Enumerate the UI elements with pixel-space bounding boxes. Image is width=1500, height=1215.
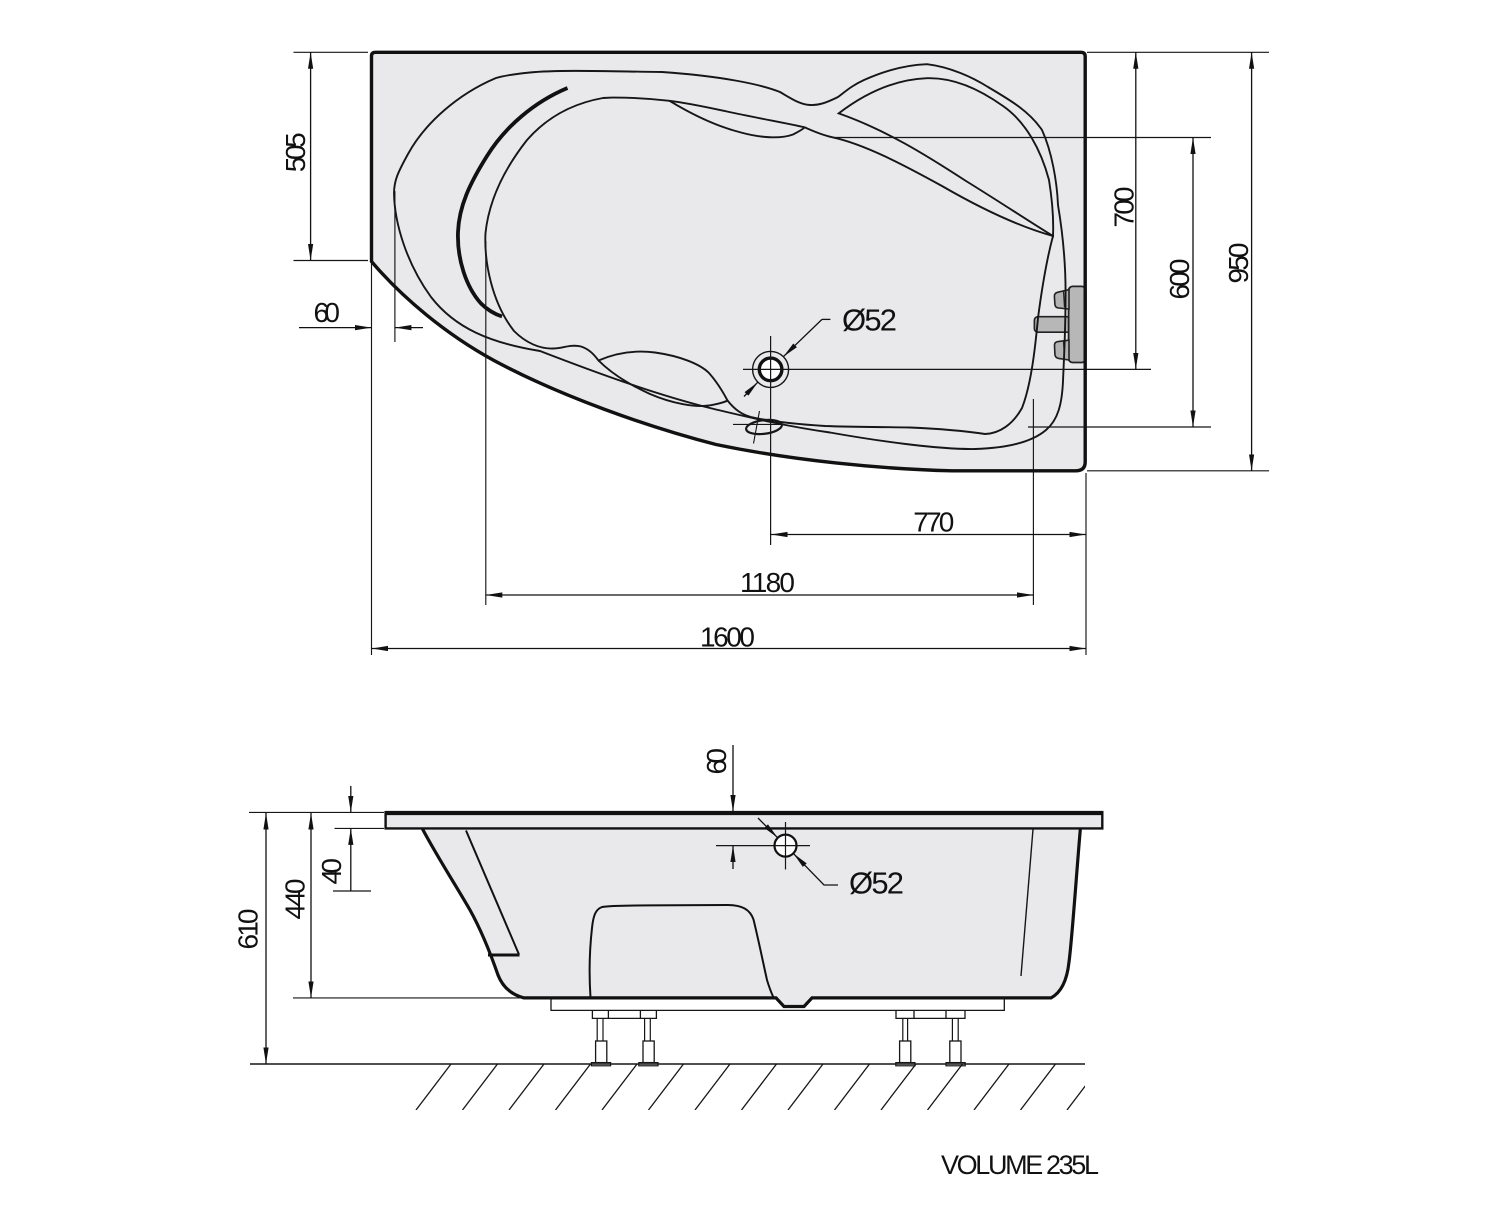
svg-text:700: 700 [1109, 187, 1140, 228]
svg-text:1600: 1600 [700, 622, 755, 653]
svg-text:Ø52: Ø52 [842, 303, 897, 338]
svg-text:Ø52: Ø52 [849, 866, 904, 901]
svg-text:950: 950 [1223, 243, 1254, 284]
svg-text:505: 505 [280, 132, 311, 172]
svg-text:1180: 1180 [740, 567, 795, 598]
svg-text:60: 60 [701, 748, 732, 775]
svg-text:40: 40 [316, 858, 347, 885]
svg-text:VOLUME 235L: VOLUME 235L [941, 1150, 1099, 1180]
svg-text:60: 60 [314, 297, 341, 328]
svg-text:610: 610 [233, 909, 264, 950]
svg-text:770: 770 [913, 507, 954, 538]
svg-text:440: 440 [280, 879, 311, 920]
svg-text:600: 600 [1164, 259, 1195, 300]
